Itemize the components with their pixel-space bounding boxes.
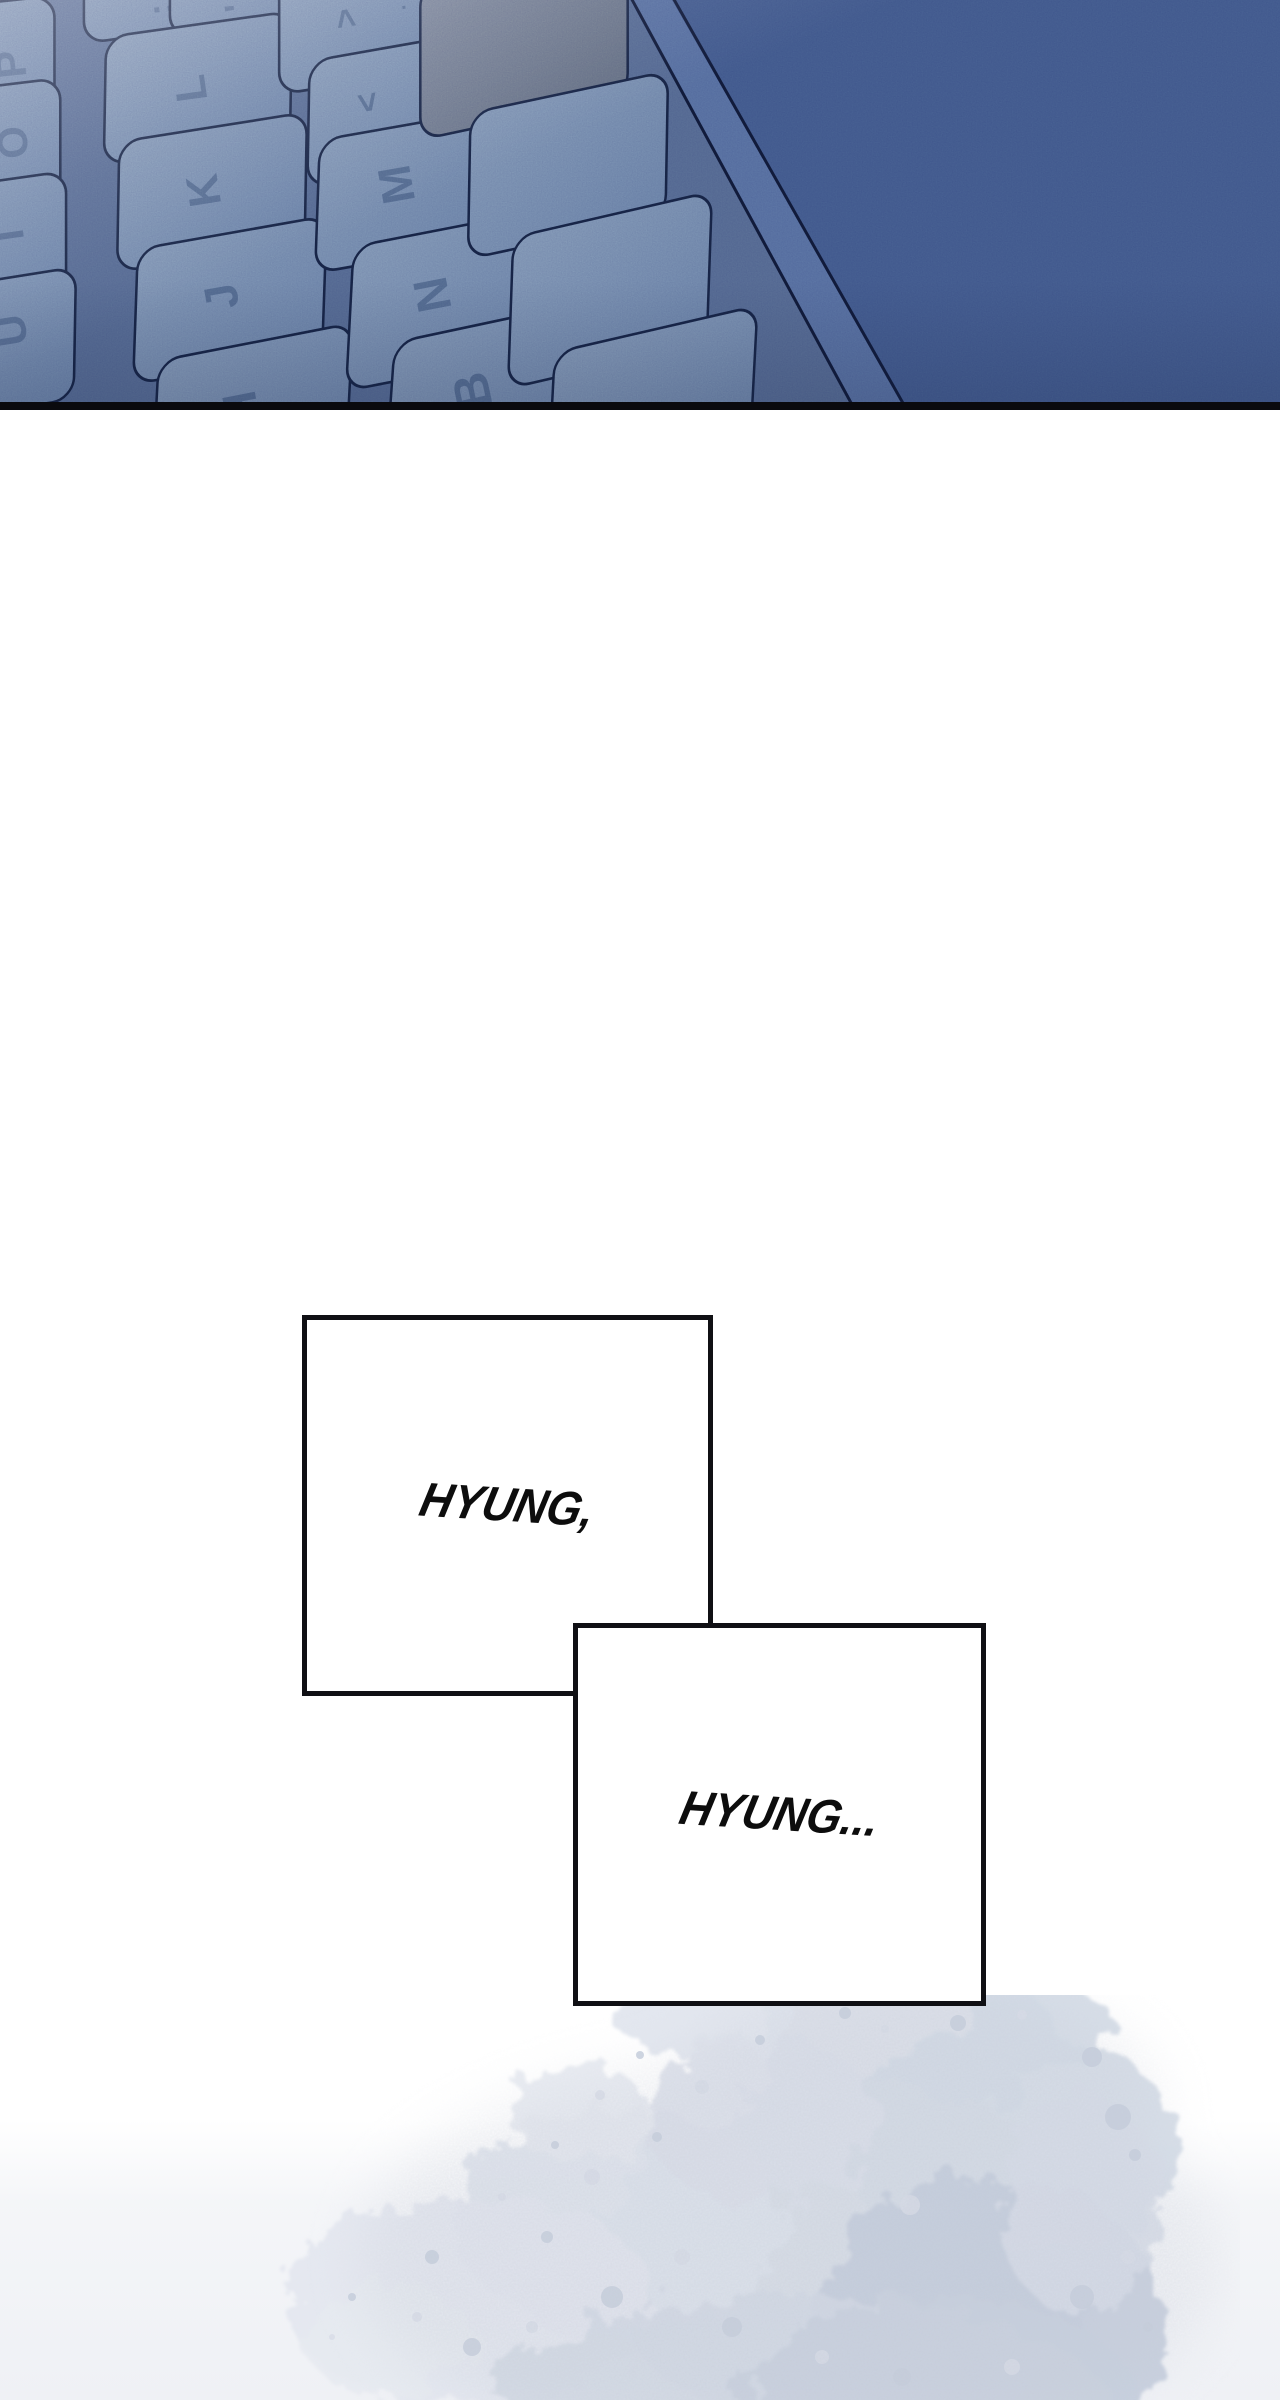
watercolor-splash [0,1995,1280,2400]
splash-art [0,1995,1280,2400]
caption-box-2: HYUNG... [573,1623,986,2006]
grain-texture [0,0,1280,410]
comic-page: POIU:'LKJH>.<,MNB [0,0,1280,2400]
splash-grain [280,1995,1240,2400]
caption-text-1: HYUNG, [416,1476,600,1534]
caption-text-2: HYUNG... [675,1785,884,1845]
keyboard-panel-art: POIU:'LKJH>.<,MNB [0,0,1280,410]
keyboard-panel: POIU:'LKJH>.<,MNB [0,0,1280,410]
panel-border [0,402,1280,410]
